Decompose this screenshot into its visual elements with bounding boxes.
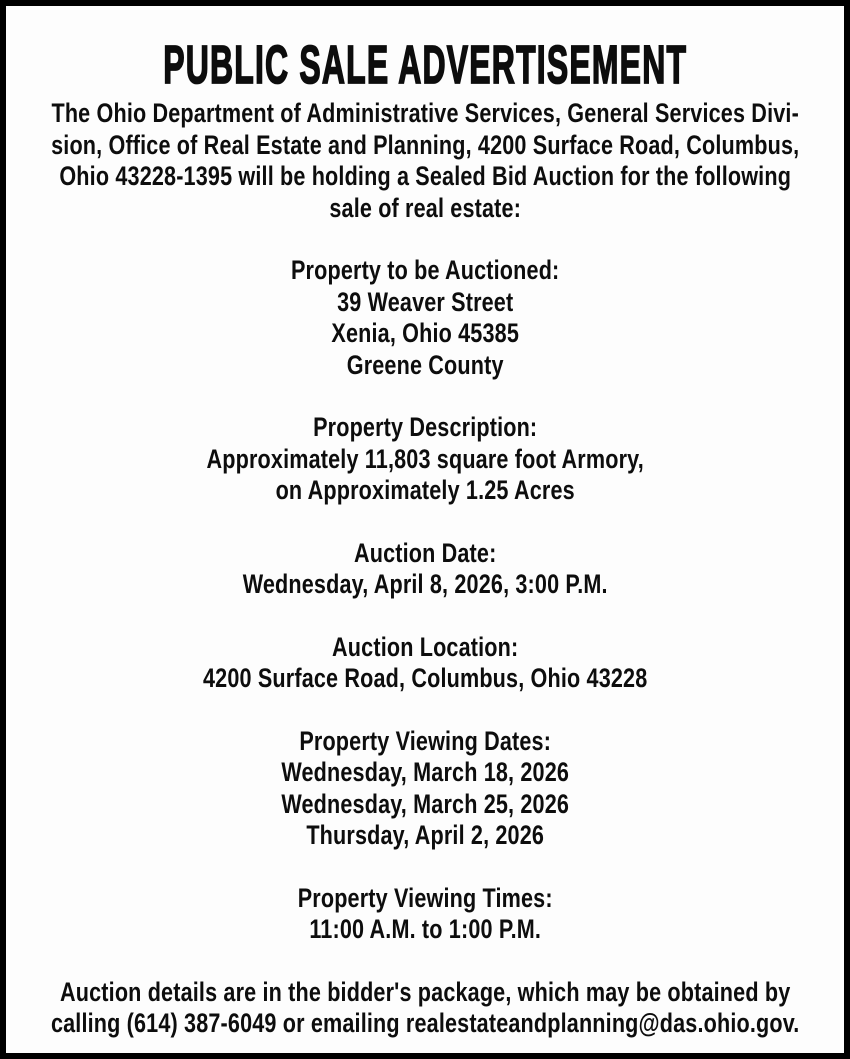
viewing-date: Thursday, April 2, 2026 xyxy=(6,820,844,852)
section-heading: Property Viewing Dates: xyxy=(6,726,844,758)
intro-line: sion, Office of Real Estate and Planning… xyxy=(6,130,844,162)
section-viewing-times: Property Viewing Times: 11:00 A.M. to 1:… xyxy=(6,883,844,946)
property-city-state-zip: Xenia, Ohio 45385 xyxy=(6,318,844,350)
section-heading: Property to be Auctioned: xyxy=(6,255,844,287)
section-heading: Property Description: xyxy=(6,412,844,444)
section-heading: Property Viewing Times: xyxy=(6,883,844,915)
auction-location-value: 4200 Surface Road, Columbus, Ohio 43228 xyxy=(6,663,844,695)
page-title: PUBLIC SALE ADVERTISEMENT xyxy=(115,36,735,94)
section-auction-date: Auction Date: Wednesday, April 8, 2026, … xyxy=(6,538,844,601)
section-heading: Auction Date: xyxy=(6,538,844,570)
intro-line: The Ohio Department of Administrative Se… xyxy=(6,98,844,130)
ad-content: PUBLIC SALE ADVERTISEMENT The Ohio Depar… xyxy=(6,6,844,1040)
intro-line: sale of real estate: xyxy=(6,193,844,225)
viewing-date: Wednesday, March 25, 2026 xyxy=(6,789,844,821)
property-street: 39 Weaver Street xyxy=(6,287,844,319)
description-line: Approximately 11,803 square foot Armory, xyxy=(6,444,844,476)
section-heading: Auction Location: xyxy=(6,632,844,664)
section-property-description: Property Description: Approximately 11,8… xyxy=(6,412,844,507)
property-county: Greene County xyxy=(6,350,844,382)
viewing-time-value: 11:00 A.M. to 1:00 P.M. xyxy=(6,914,844,946)
section-auction-location: Auction Location: 4200 Surface Road, Col… xyxy=(6,632,844,695)
footer-line: calling (614) 387-6049 or emailing reale… xyxy=(6,1008,844,1040)
advertisement-page: PUBLIC SALE ADVERTISEMENT The Ohio Depar… xyxy=(0,0,850,1059)
intro-line: Ohio 43228-1395 will be holding a Sealed… xyxy=(6,161,844,193)
description-line: on Approximately 1.25 Acres xyxy=(6,475,844,507)
section-viewing-dates: Property Viewing Dates: Wednesday, March… xyxy=(6,726,844,852)
auction-date-value: Wednesday, April 8, 2026, 3:00 P.M. xyxy=(6,569,844,601)
viewing-date: Wednesday, March 18, 2026 xyxy=(6,757,844,789)
section-property-to-be-auctioned: Property to be Auctioned: 39 Weaver Stre… xyxy=(6,255,844,381)
footer-line: Auction details are in the bidder's pack… xyxy=(6,977,844,1009)
footer-paragraph: Auction details are in the bidder's pack… xyxy=(6,977,844,1040)
intro-paragraph: The Ohio Department of Administrative Se… xyxy=(6,98,844,224)
